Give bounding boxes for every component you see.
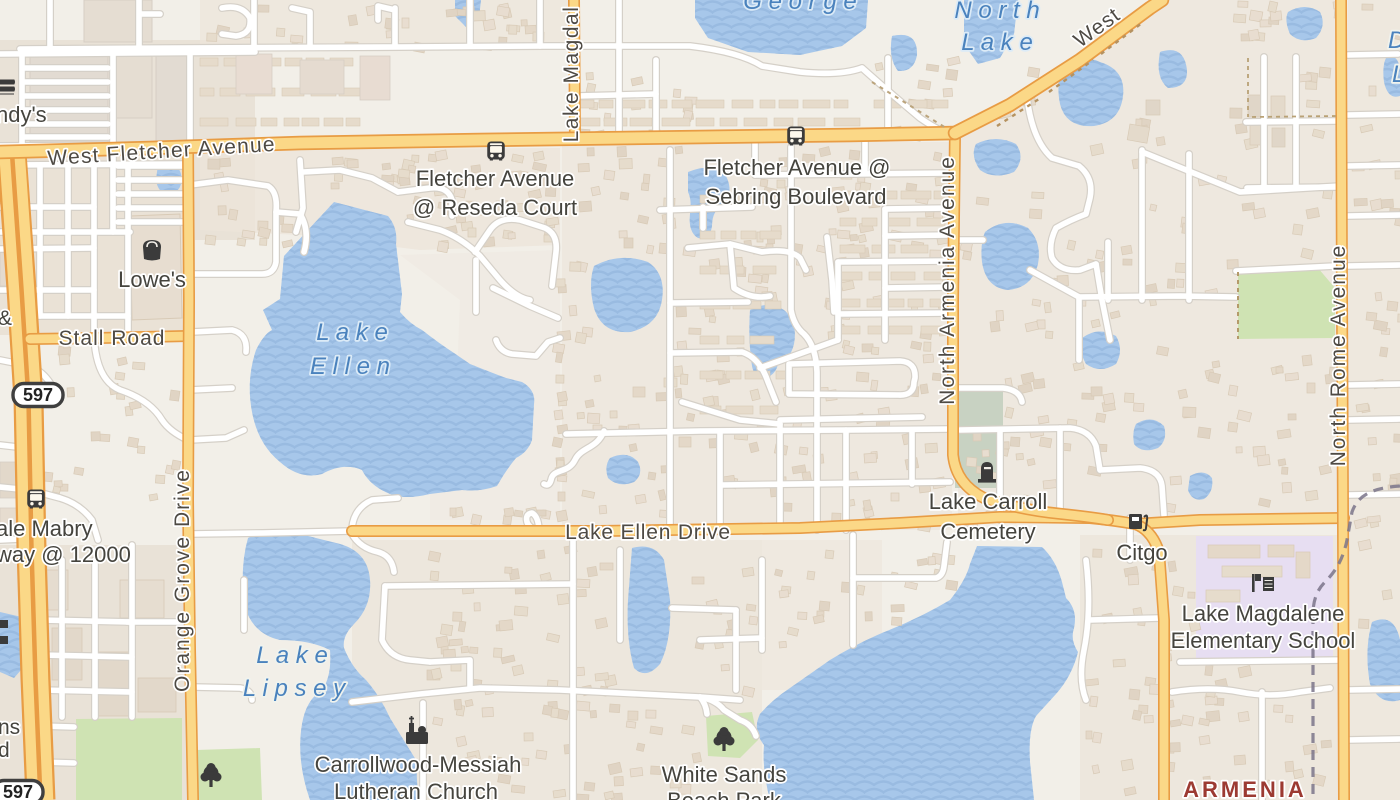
svg-text:Lake Magdal: Lake Magdal	[560, 6, 583, 143]
svg-text:Cemetery: Cemetery	[940, 519, 1035, 544]
svg-text:Lowe's: Lowe's	[118, 267, 186, 292]
svg-text:N o r t h: N o r t h	[954, 0, 1039, 24]
svg-text:North Armenia Avenue: North Armenia Avenue	[936, 155, 959, 405]
svg-text:ndy's: ndy's	[0, 102, 47, 127]
svg-text:way @ 12000: way @ 12000	[0, 542, 131, 567]
svg-text:Citgo: Citgo	[1116, 540, 1167, 565]
svg-text:G e o r g e: G e o r g e	[743, 0, 856, 15]
svg-text:Fletcher Avenue @: Fletcher Avenue @	[703, 155, 890, 180]
svg-text:Lake Magdalene: Lake Magdalene	[1182, 601, 1345, 626]
svg-text:Elementary School: Elementary School	[1171, 628, 1356, 653]
svg-text:Lake Carroll: Lake Carroll	[929, 489, 1048, 514]
svg-text:Carrollwood-Messiah: Carrollwood-Messiah	[315, 752, 522, 777]
svg-text:D: D	[1388, 27, 1400, 54]
svg-text:@ Reseda Court: @ Reseda Court	[413, 195, 577, 220]
svg-text:Lutheran Church: Lutheran Church	[334, 779, 498, 800]
svg-text:597: 597	[23, 385, 53, 405]
svg-text:d: d	[0, 739, 10, 762]
svg-text:&: &	[0, 307, 12, 330]
svg-text:ARMENIA: ARMENIA	[1183, 777, 1307, 800]
svg-text:Sebring Boulevard: Sebring Boulevard	[705, 184, 886, 209]
svg-text:Stall Road: Stall Road	[59, 327, 166, 350]
svg-text:Orange Grove Drive: Orange Grove Drive	[171, 468, 194, 692]
svg-text:ns: ns	[0, 716, 20, 739]
svg-text:L i p s e y: L i p s e y	[243, 675, 347, 702]
svg-text:L a k e: L a k e	[316, 319, 388, 346]
svg-text:Lake Ellen Drive: Lake Ellen Drive	[565, 521, 731, 544]
svg-text:E l l e n: E l l e n	[310, 353, 390, 380]
svg-text:597: 597	[3, 782, 33, 800]
svg-text:L a k e: L a k e	[256, 642, 328, 669]
svg-text:North Rome Avenue: North Rome Avenue	[1327, 244, 1350, 467]
svg-text:ale Mabry: ale Mabry	[0, 516, 93, 541]
svg-text:Beach Park: Beach Park	[667, 788, 782, 800]
svg-text:L a k e: L a k e	[961, 29, 1033, 56]
svg-text:White Sands: White Sands	[662, 762, 787, 787]
svg-text:L: L	[1392, 61, 1400, 88]
svg-text:Fletcher Avenue: Fletcher Avenue	[416, 166, 575, 191]
